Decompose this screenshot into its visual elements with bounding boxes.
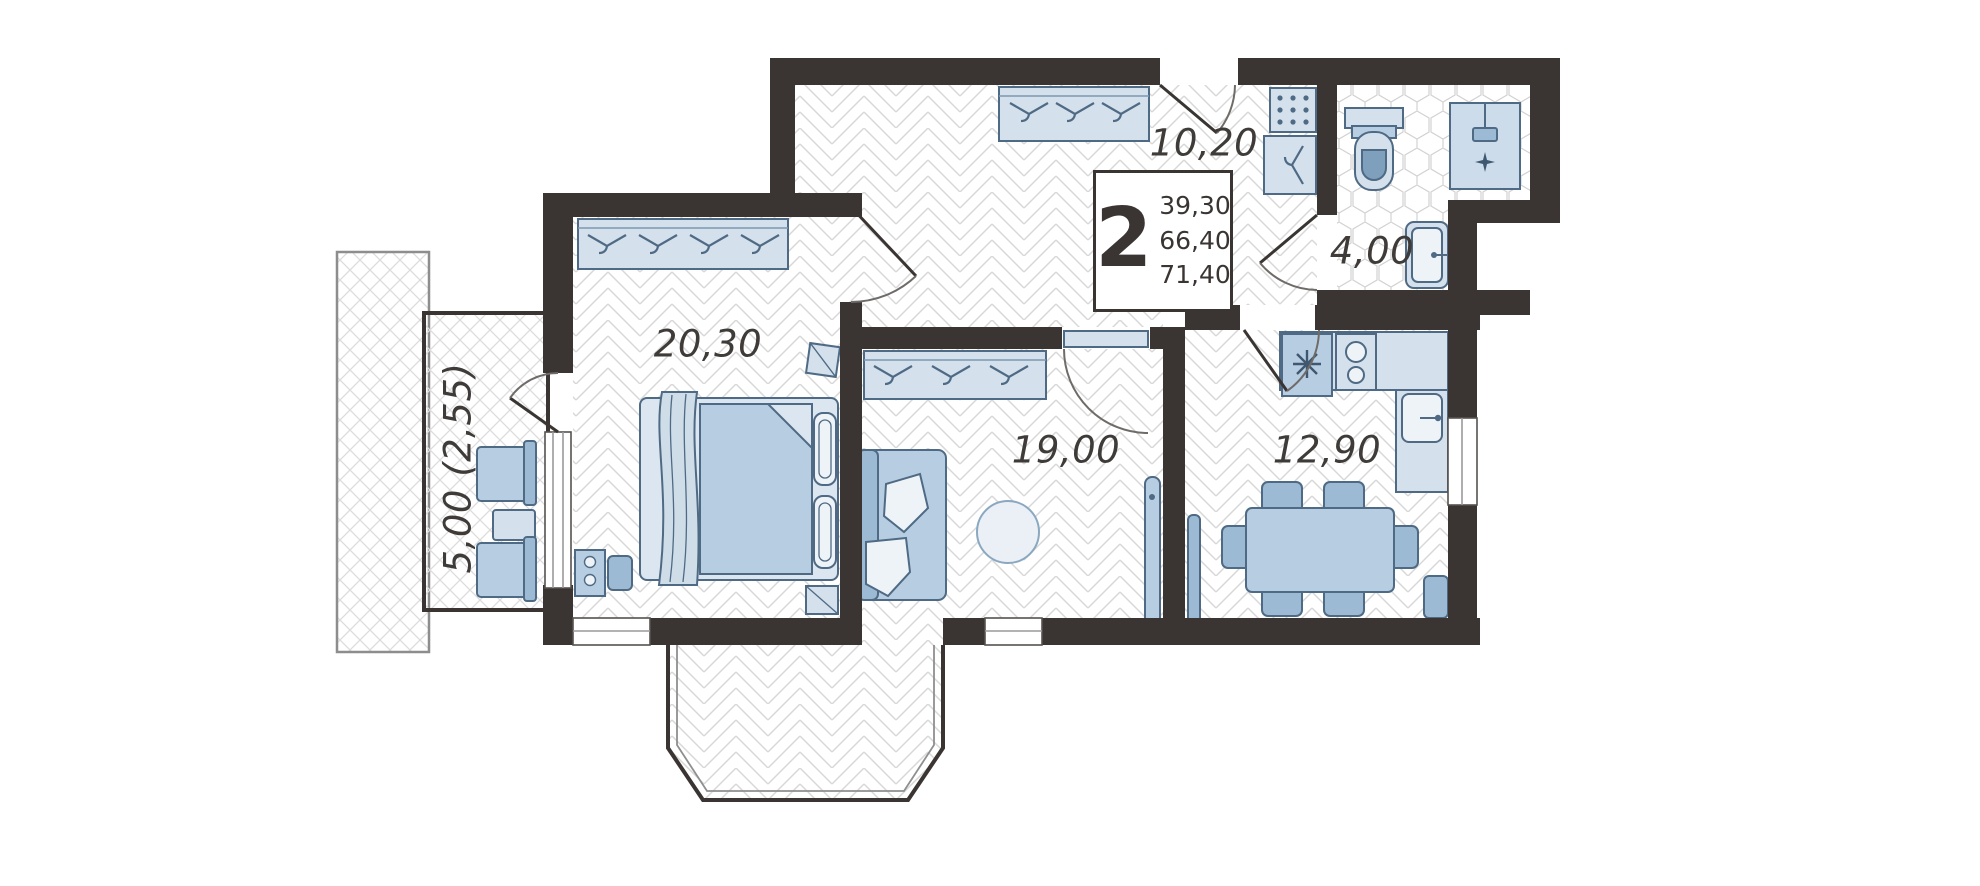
nightstand [806, 586, 838, 614]
tv-kitchen [1188, 515, 1200, 623]
pillow [814, 413, 836, 485]
wall-segment [543, 618, 573, 645]
room-area-label-hallway: 10,20 [1150, 122, 1258, 165]
floor-plan: 20,30 10,20 4,00 19,00 12,90 5,00 (2,55)… [0, 0, 1980, 886]
round-rug [977, 501, 1039, 563]
double-bed [640, 392, 838, 585]
desk-chair [608, 556, 632, 590]
wall-segment [840, 327, 1062, 349]
room-area-label-bedroom: 20,30 [654, 323, 762, 366]
bedroom-wardrobe [578, 219, 788, 269]
floor-plan-drawing [0, 0, 1980, 886]
stove [1336, 334, 1376, 390]
wall-segment [1163, 327, 1185, 618]
balcony-table [493, 510, 535, 540]
area-value: 66,40 [1159, 224, 1231, 259]
room-area-label-living-room: 19,00 [1012, 429, 1120, 472]
bedroom-desk [575, 550, 632, 596]
shoe-cabinet [1270, 88, 1316, 132]
wall-segment [1238, 58, 1560, 85]
wall-segment [1317, 85, 1337, 215]
wall-segment [770, 58, 1160, 85]
wall-segment [770, 58, 795, 193]
wall-segment [1150, 327, 1163, 349]
area-values: 39,30 66,40 71,40 [1159, 189, 1231, 293]
neighbor-balcony-floor [337, 252, 429, 652]
living-space-value: 39,30 [1159, 189, 1231, 224]
wall-segment [650, 618, 862, 645]
balcony-chair-bottom [477, 537, 536, 601]
kitchen-sink [1396, 390, 1448, 492]
sofa [858, 450, 946, 600]
coat-hanger-panel [1264, 136, 1316, 194]
room-area-label-bathroom: 4,00 [1330, 230, 1414, 273]
entrance-opening [1160, 58, 1238, 85]
pillow [814, 496, 836, 568]
hallway-wardrobe [999, 87, 1149, 141]
kitchen-window [1448, 418, 1477, 505]
living-wardrobe [864, 351, 1046, 399]
bed-throw [659, 392, 699, 585]
wall-segment [543, 193, 573, 373]
balcony-chair-top [477, 441, 536, 505]
wall-segment [1315, 305, 1480, 330]
room-area-label-kitchen: 12,90 [1273, 429, 1381, 472]
dining-table [1246, 508, 1394, 592]
balcony-glazing [545, 432, 571, 588]
room-area-label-balcony: 5,00 (2,55) [437, 363, 480, 574]
wall-segment [943, 618, 985, 645]
wall-segment [1530, 58, 1560, 223]
living-window [985, 618, 1042, 645]
total-area-value: 71,40 [1159, 258, 1231, 293]
wall-segment [543, 193, 862, 217]
shower [1450, 103, 1520, 189]
apartment-info-box: 2 39,30 66,40 71,40 [1093, 170, 1233, 312]
wall-segment [840, 302, 862, 645]
bedroom-window [573, 618, 650, 645]
wall-segment [840, 193, 862, 213]
burner-star-icon [1293, 350, 1321, 378]
nightstand [806, 343, 840, 377]
rooms-count: 2 [1095, 198, 1152, 280]
wall-segment [1042, 618, 1480, 645]
kitchen-bench [1424, 576, 1448, 618]
